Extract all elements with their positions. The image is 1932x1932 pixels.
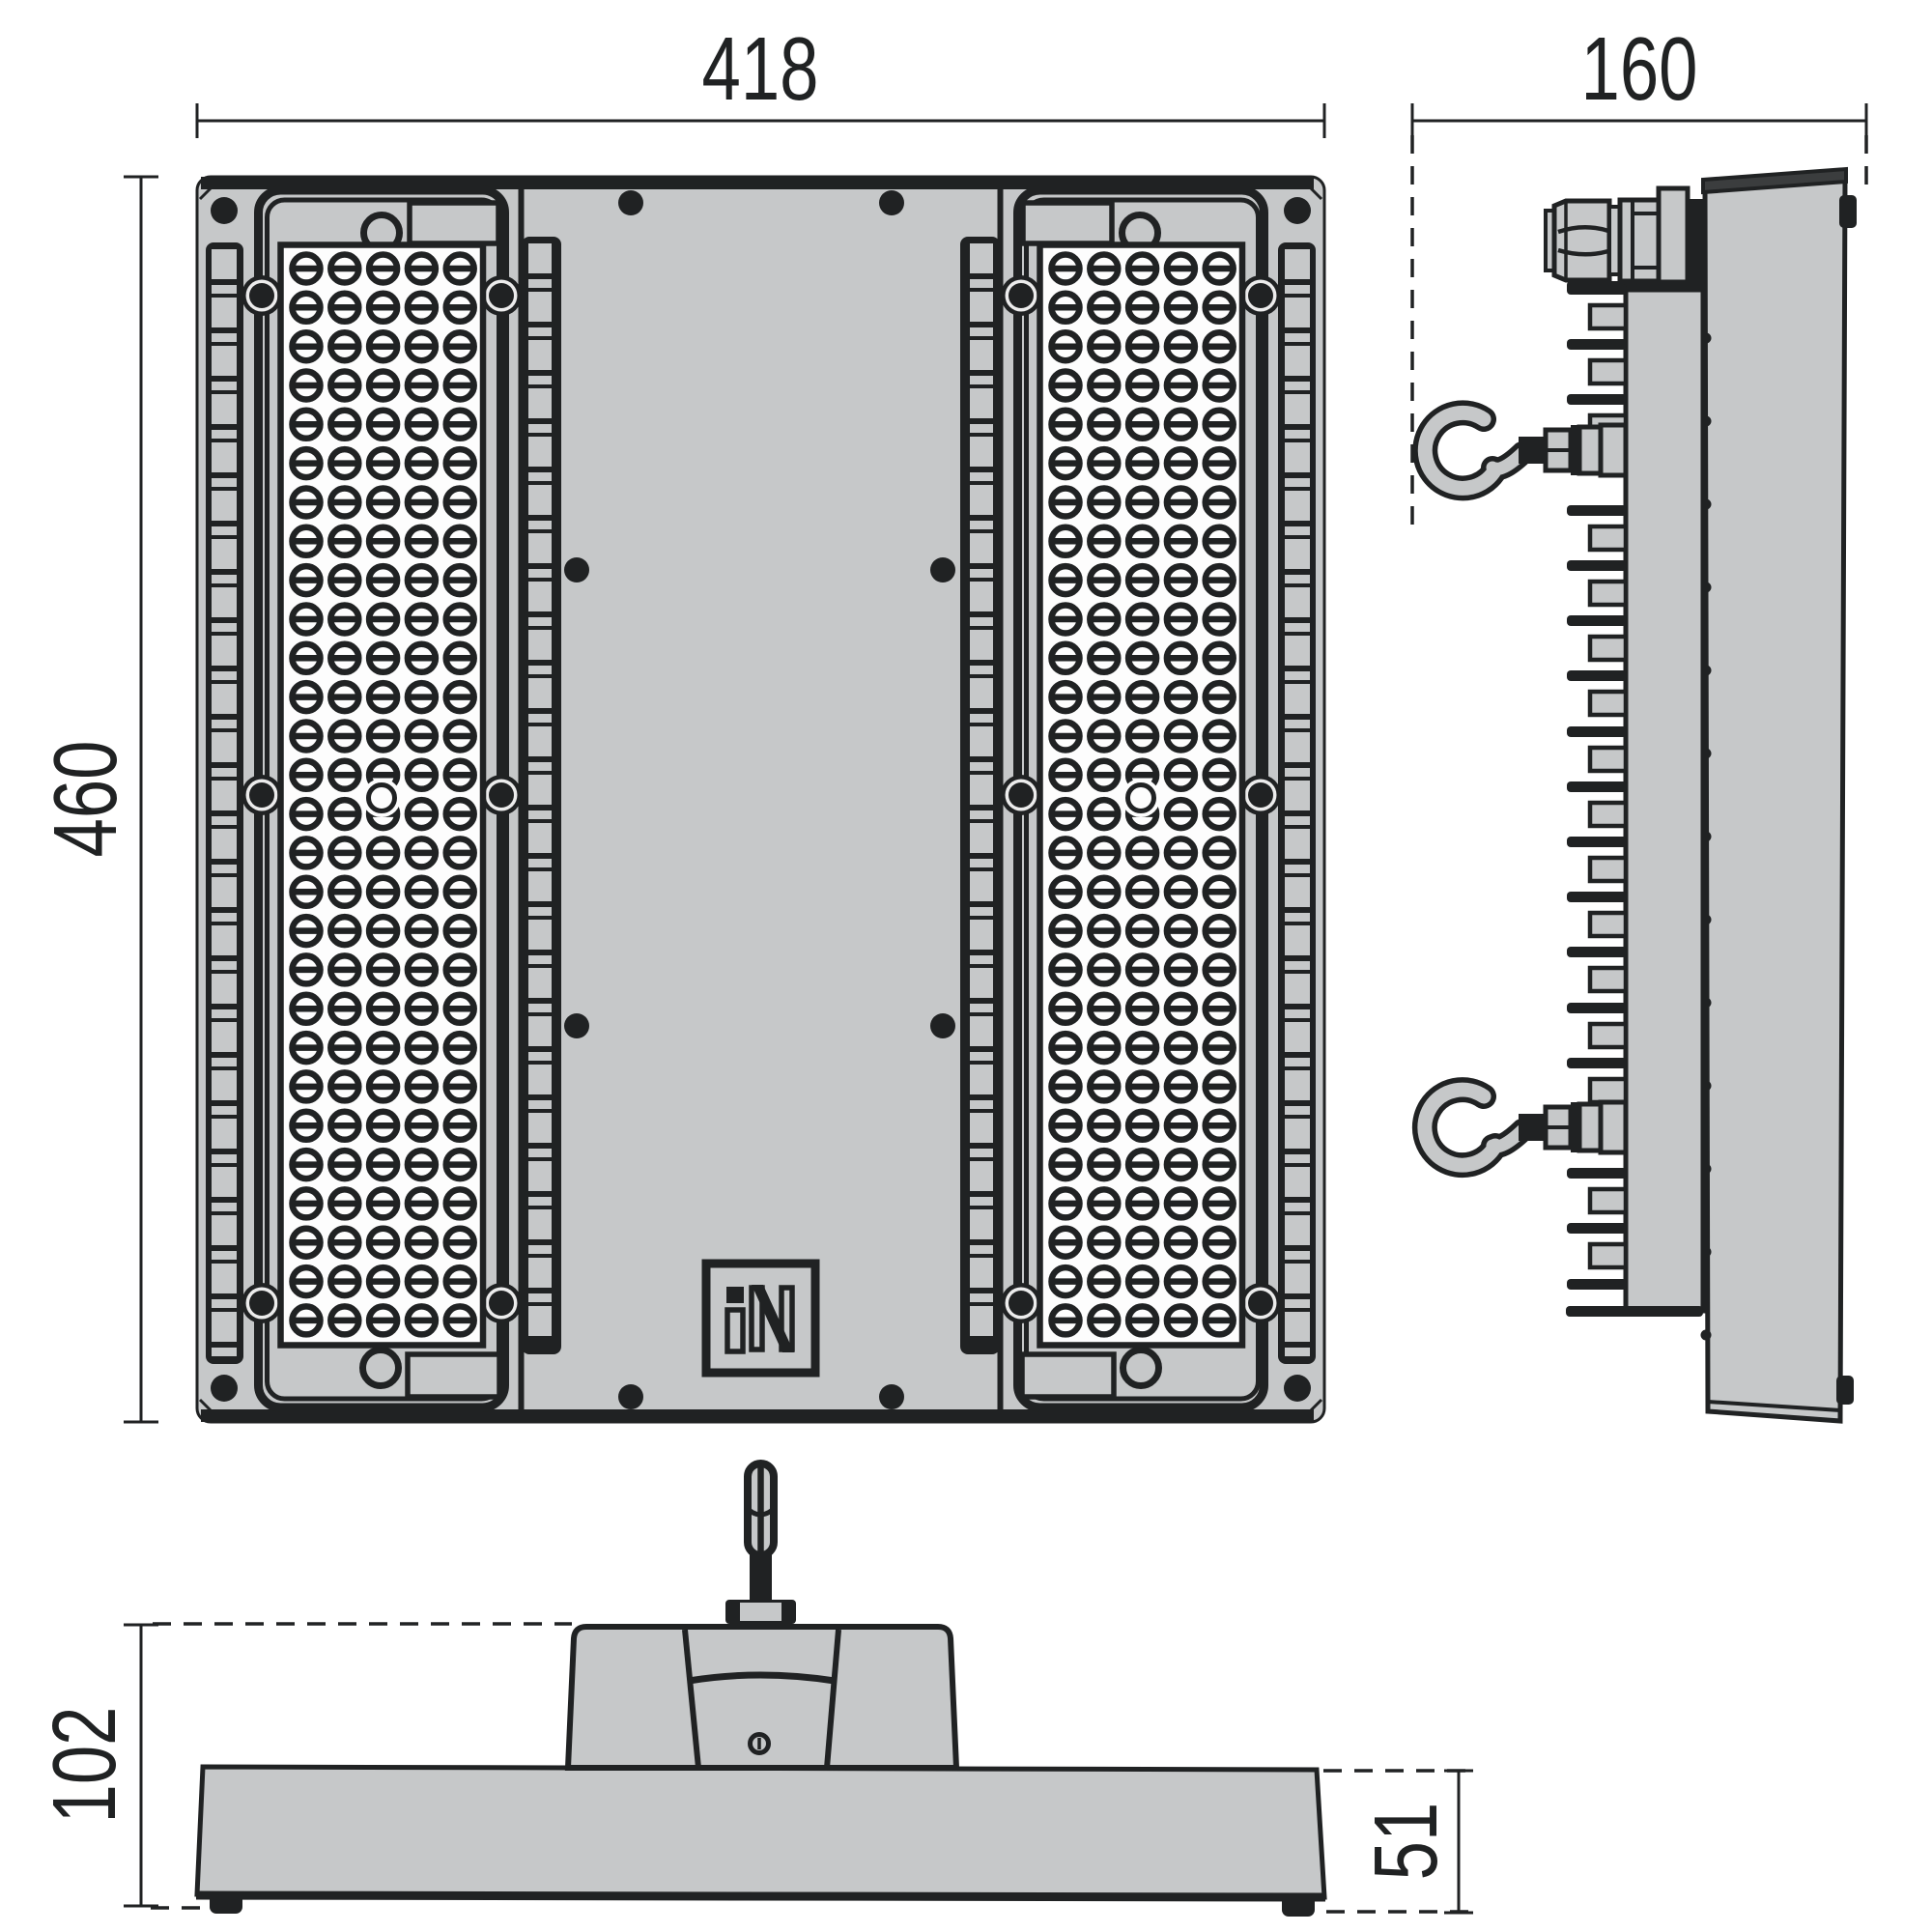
svg-text:460: 460: [35, 741, 135, 858]
svg-text:51: 51: [1355, 1803, 1456, 1881]
svg-text:418: 418: [702, 18, 819, 119]
svg-text:160: 160: [1581, 18, 1698, 119]
svg-text:102: 102: [34, 1707, 134, 1824]
